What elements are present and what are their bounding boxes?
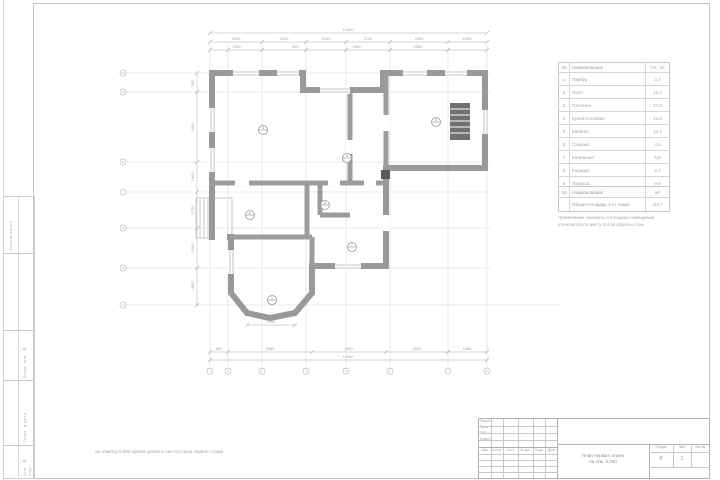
room-area: 4,6 xyxy=(645,138,669,150)
room-area: 21,6 xyxy=(645,112,669,124)
room-number: 3 xyxy=(559,99,570,111)
tb-line xyxy=(479,460,557,461)
svg-text:1800: 1800 xyxy=(190,281,195,291)
explication-header-name: Наименование xyxy=(570,63,645,72)
axis-bubble: 2 xyxy=(225,368,231,374)
dimension-labels: 13460 2530 2140 1940 2140 2820 1890 1500… xyxy=(232,27,473,49)
svg-text:1940: 1940 xyxy=(190,243,195,253)
tb-label-podp: Подп. xyxy=(533,448,545,452)
explication-row: 2 Холл 15,2 xyxy=(559,85,669,98)
axis-bubble: 8 xyxy=(484,368,490,374)
tb-line xyxy=(479,472,557,473)
axis-bubble: В xyxy=(120,225,126,231)
summary-row-num xyxy=(559,198,570,211)
svg-text:В: В xyxy=(122,226,124,230)
axis-bubbles-columns: 1 2 3 4 5 6 7 8 xyxy=(207,368,490,374)
vent-shaft xyxy=(381,170,390,179)
tb-line xyxy=(649,467,709,468)
summary-header-area: м² xyxy=(645,187,669,197)
svg-text:2820: 2820 xyxy=(415,36,425,41)
room-tag: 4 xyxy=(343,153,352,163)
explication-table: № Наименование Пл., м² 1 Тамбур 3,4 2 Хо… xyxy=(558,62,670,190)
axis-bubbles-rows: Ж Е Д Г В Б А xyxy=(120,70,126,308)
room-area: 3,4 xyxy=(645,73,669,85)
left-strip-label-podp: Подп. и дата xyxy=(22,384,27,442)
explication-row: 4 Кухня-столовая 21,6 xyxy=(559,111,669,124)
explication-row: 6 Санузел 4,6 xyxy=(559,137,669,150)
svg-text:1460: 1460 xyxy=(190,172,195,182)
interior-walls xyxy=(212,73,386,266)
room-tag: 2 xyxy=(246,210,255,220)
top-dimensions: 13460 2530 2140 1940 2140 2820 1890 1500… xyxy=(208,27,489,52)
tb-label-sheet: Лист xyxy=(673,445,691,449)
room-tag: 1 xyxy=(268,295,277,305)
summary-table: № Наименование м² Общая площадь 1-го эта… xyxy=(558,186,670,212)
room-number: 4 xyxy=(559,112,570,124)
left-strip-label-inv: Инв. № подл. xyxy=(22,448,32,476)
room-area: 8,4 xyxy=(645,164,669,176)
tb-stage-value: Р xyxy=(649,456,673,462)
axis-bubble: А xyxy=(120,302,126,308)
title-block: Изм. Кол.уч Лист № док. Подп. Дата Разра… xyxy=(478,418,710,479)
tb-label-izm: Изм. xyxy=(479,448,491,452)
tb-line xyxy=(557,419,558,478)
tb-label-list: Лист xyxy=(503,448,518,452)
axis-bubble: 3 xyxy=(259,368,265,374)
summary-header-name: Наименование xyxy=(570,187,645,197)
axis-bubble: 5 xyxy=(343,368,349,374)
room-name: Санузел xyxy=(570,138,645,150)
note-line-2: уточняются по месту после отделки стен. xyxy=(558,222,673,229)
svg-text:2530: 2530 xyxy=(232,36,242,41)
drawing-sheet: Согласовано Взам. инв. № Подп. и дата Ин… xyxy=(0,0,720,480)
axis-bubble: 4 xyxy=(303,368,309,374)
room-name: Котельная xyxy=(570,151,645,163)
left-strip-label-vzam: Взам. инв. № xyxy=(22,334,27,378)
svg-text:Е: Е xyxy=(122,90,124,94)
left-strip-line xyxy=(3,253,33,254)
room-number: 2 xyxy=(559,86,570,98)
left-strip-line xyxy=(3,330,33,331)
explication-row: 5 Кабинет 13,1 xyxy=(559,124,669,137)
svg-text:950: 950 xyxy=(190,79,195,86)
tb-line xyxy=(479,433,557,434)
svg-text:2140: 2140 xyxy=(280,36,290,41)
room-tag: 6 xyxy=(321,200,330,210)
summary-row: Общая площадь 1-го этажа 110,7 xyxy=(559,197,669,211)
summary-header-num: № xyxy=(559,187,570,197)
room-number: 8 xyxy=(559,164,570,176)
room-tag: 5 xyxy=(432,117,441,127)
svg-text:3620: 3620 xyxy=(345,346,355,351)
tb-sheet-value: 1 xyxy=(673,456,691,462)
room-tag: 3 xyxy=(259,125,268,135)
axis-bubble: 6 xyxy=(387,368,393,374)
tb-label-data: Дата xyxy=(545,448,557,452)
explication-row: 1 Тамбур 3,4 xyxy=(559,72,669,85)
room-area: 27,8 xyxy=(645,99,669,111)
axis-bubble: Е xyxy=(120,89,126,95)
svg-text:1890: 1890 xyxy=(463,36,473,41)
axis-bubble: Г xyxy=(120,189,126,195)
svg-text:1060: 1060 xyxy=(353,44,363,49)
summary-row-name: Общая площадь 1-го этажа xyxy=(570,198,645,211)
tb-line xyxy=(479,440,557,441)
tb-line xyxy=(649,452,709,453)
room-name: Холл xyxy=(570,86,645,98)
axis-bubble: 7 xyxy=(445,368,451,374)
axis-bubble: 1 xyxy=(207,368,213,374)
room-tag: 7 xyxy=(348,242,357,252)
left-strip-line xyxy=(3,445,33,446)
tb-line xyxy=(479,466,557,467)
svg-text:900: 900 xyxy=(292,44,299,49)
svg-text:Д: Д xyxy=(122,160,124,164)
tb-line xyxy=(479,454,557,455)
axis-bubble: Ж xyxy=(120,70,126,76)
summary-header: № Наименование м² xyxy=(559,187,669,197)
room-number: 7 xyxy=(559,151,570,163)
bottom-dimensions: 880 4080 3620 3000 1880 13460 xyxy=(208,346,489,362)
room-area: 6,8 xyxy=(645,151,669,163)
left-strip-label-soglasovano: Согласовано xyxy=(8,200,13,250)
room-area: 13,1 xyxy=(645,125,669,137)
room-number: 1 xyxy=(559,73,570,85)
tb-label-doc: № док. xyxy=(518,448,533,452)
plan-note: Примечание: размеры и площади помещений … xyxy=(558,215,673,228)
tb-title-line2: на отм. 0,000 xyxy=(559,459,647,465)
floor-plan: 3 4 5 2 6 7 1 xyxy=(85,20,575,380)
explication-row: 7 Котельная 6,8 xyxy=(559,150,669,163)
room-name: Тамбур xyxy=(570,73,645,85)
svg-text:3000: 3000 xyxy=(413,346,423,351)
room-tags: 3 4 5 2 6 7 1 xyxy=(246,117,441,305)
explication-header-area: Пл., м² xyxy=(645,63,669,72)
room-name: Коридор xyxy=(570,164,645,176)
tb-drawing-title: План первого этажа на отм. 0,000 xyxy=(559,453,647,465)
explication-header-num: № xyxy=(559,63,570,72)
plan-caption: За отметку 0,000 принят уровень чистого … xyxy=(95,449,315,454)
axis-bubble: Д xyxy=(120,159,126,165)
left-strip-line xyxy=(3,380,33,381)
svg-text:А: А xyxy=(122,303,124,307)
door-openings xyxy=(215,115,390,241)
svg-text:1940: 1940 xyxy=(322,36,332,41)
bay-dimension: 1500 xyxy=(245,319,297,327)
svg-text:2140: 2140 xyxy=(364,36,374,41)
tb-label-kol: Кол.уч xyxy=(491,448,503,452)
axis-bubble: Б xyxy=(120,265,126,271)
explication-header: № Наименование Пл., м² xyxy=(559,63,669,72)
left-strip-divider xyxy=(18,196,19,477)
svg-text:880: 880 xyxy=(216,346,223,351)
room-number: 5 xyxy=(559,125,570,137)
room-area: 15,2 xyxy=(645,86,669,98)
svg-text:1500: 1500 xyxy=(267,319,277,324)
svg-text:Б: Б xyxy=(122,266,124,270)
room-name: Гостиная xyxy=(570,99,645,111)
tb-label-sheets: Листов xyxy=(691,445,709,449)
room-number: 6 xyxy=(559,138,570,150)
left-dimensions: 950 3400 1460 1750 1940 1800 xyxy=(190,71,199,307)
summary-row-area: 110,7 xyxy=(645,198,669,211)
svg-text:1880: 1880 xyxy=(463,346,473,351)
tb-label-stage: Стадия xyxy=(649,445,673,449)
room-name: Кухня-столовая xyxy=(570,112,645,124)
explication-rows: 1 Тамбур 3,4 2 Холл 15,2 3 Гостиная 27,8… xyxy=(559,72,669,189)
svg-text:Ж: Ж xyxy=(122,71,125,75)
tb-staff-role-text: Разраб. xyxy=(480,419,491,423)
svg-text:13460: 13460 xyxy=(342,354,354,359)
dimension-ticks xyxy=(208,31,489,52)
svg-text:4080: 4080 xyxy=(266,346,276,351)
svg-text:1350: 1350 xyxy=(414,44,424,49)
explication-row: 3 Гостиная 27,8 xyxy=(559,98,669,111)
svg-text:3400: 3400 xyxy=(190,122,195,132)
svg-text:1500: 1500 xyxy=(233,44,243,49)
room-name: Кабинет xyxy=(570,125,645,137)
explication-row: 8 Коридор 8,4 xyxy=(559,163,669,176)
svg-text:1750: 1750 xyxy=(190,205,195,215)
svg-text:13460: 13460 xyxy=(342,27,354,32)
tb-line xyxy=(479,426,557,427)
